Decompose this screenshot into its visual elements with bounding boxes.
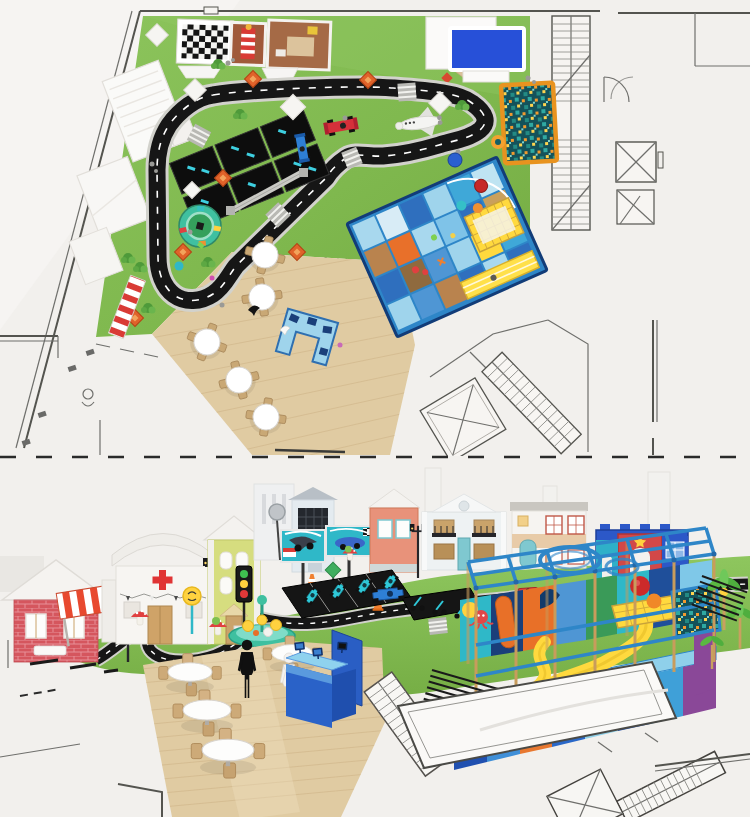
playground-design-image [0, 0, 750, 817]
ring-toy [491, 135, 505, 149]
plan-view-panel [0, 0, 750, 495]
blue-ball [448, 153, 462, 167]
zebra-crossing-3d [428, 617, 448, 635]
teal-ball [175, 262, 184, 271]
toy-frame-red-tower [230, 22, 265, 65]
design-canvas [0, 0, 750, 817]
checkered-flag-mat [176, 19, 234, 65]
toy-frame-playhouse [267, 20, 331, 70]
ball-pit [501, 83, 557, 164]
cad-staircase [552, 16, 590, 230]
perspective-view-panel [0, 456, 750, 817]
big-red-ball [630, 576, 650, 596]
big-orange-ball [647, 594, 662, 609]
zebra-crossing [397, 82, 416, 101]
